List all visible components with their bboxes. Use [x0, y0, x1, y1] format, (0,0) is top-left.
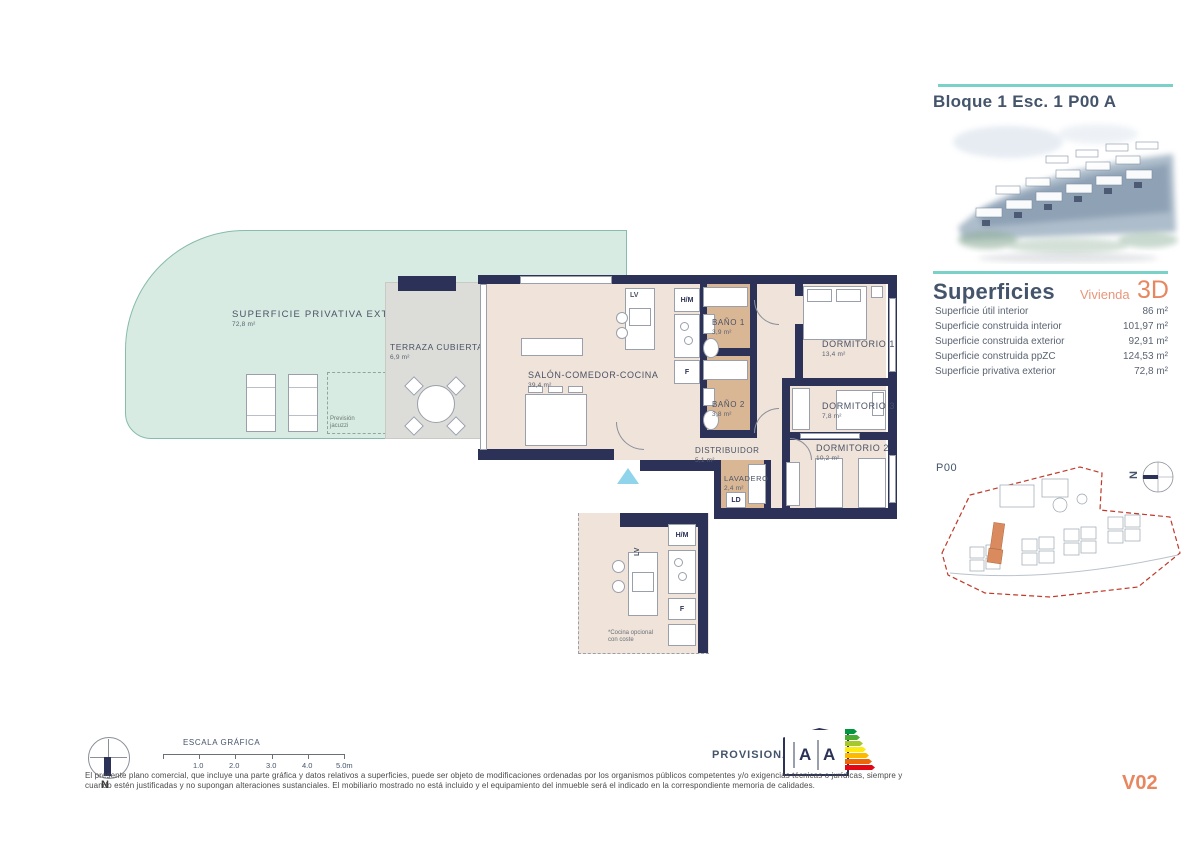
pillow [807, 289, 832, 302]
sideboard [521, 338, 583, 356]
unit-code: 3D [1137, 276, 1169, 305]
laundry-unit: LD [726, 492, 746, 508]
wall [714, 508, 897, 519]
scale-bar: 1.0 2.0 3.0 4.0 5.0m [163, 754, 345, 760]
superficies-heading: Superficies [933, 279, 1055, 305]
room-label-bano2: BAÑO 2 3,8 m² [712, 400, 745, 419]
siteplan-compass: N [1128, 462, 1173, 492]
sink-icon [680, 322, 689, 331]
wall [478, 449, 614, 460]
scale-title: ESCALA GRÁFICA [183, 738, 260, 747]
dining-table [525, 394, 587, 446]
window [889, 455, 896, 503]
energy-scale-icon [845, 729, 877, 775]
room-label-terraza: TERRAZA CUBIERTA 6,9 m² [390, 343, 483, 362]
room-label-bano1: BAÑO 1 3,9 m² [712, 318, 745, 337]
round-table [417, 385, 455, 423]
room-label-distribuidor: DISTRIBUIDOR 5,1 m² [695, 446, 760, 465]
plan-sheet: SUPERFICIE PRIVATIVA EXTERIOR 72,8 m² Pr… [0, 0, 1200, 850]
hob-icon [612, 580, 625, 593]
room-label-salon: SALÓN-COMEDOR-COCINA 39,4 m² [528, 371, 659, 390]
wall [795, 284, 803, 296]
wall [714, 460, 721, 512]
highlighted-block [987, 522, 1005, 563]
disclaimer-line-1: El presente plano comercial, que incluye… [85, 771, 1165, 780]
bathtub [703, 287, 748, 307]
window [520, 276, 612, 284]
accent-divider [933, 271, 1168, 274]
toilet [703, 338, 719, 358]
room-label-dorm3: DORMITORIO 3 7,8 m² [822, 402, 895, 421]
siteplan: N [930, 455, 1192, 615]
entrance-marker-icon [617, 468, 639, 484]
nightstand [871, 286, 883, 298]
sliding-glass-door [480, 284, 487, 450]
accent-divider [938, 84, 1173, 87]
sun-lounger [246, 374, 276, 432]
north-label: N [1128, 471, 1140, 479]
hob-icon [612, 560, 625, 573]
optional-kitchen-note: *Cocina opcional con coste [608, 630, 653, 644]
wall [398, 276, 456, 291]
fridge-unit: F [668, 598, 696, 620]
wardrobe [786, 462, 800, 506]
building-render [948, 112, 1180, 264]
counter-unit [668, 624, 696, 646]
fridge-unit: F [674, 360, 700, 384]
scale-tick-label: 5.0m [336, 761, 353, 770]
sink-icon [684, 336, 693, 345]
hob-icon [616, 312, 628, 324]
oven-micro-unit: H/M [674, 288, 700, 312]
wall [750, 284, 757, 356]
energy-house-icon: A A [783, 728, 849, 776]
jacuzzi-note: Previsión jacuzzi [330, 416, 355, 430]
pillow [836, 289, 861, 302]
bathtub [703, 360, 748, 380]
scale-tick-label: 1.0 [193, 761, 203, 770]
wardrobe [792, 388, 810, 430]
sliding-door [800, 433, 860, 439]
room-label-dorm2: DORMITORIO 2 10,2 m² [816, 444, 889, 463]
wall [795, 324, 803, 378]
wall [782, 386, 790, 432]
oven-micro-unit: H/M [668, 524, 696, 546]
hob-icon [616, 327, 628, 339]
sink-icon [674, 558, 683, 567]
dishwasher-label: LV [630, 292, 638, 299]
window [889, 298, 896, 372]
room-name: TERRAZA CUBIERTA [390, 343, 483, 352]
kitchen-sink [629, 308, 651, 326]
sheet-title: Bloque 1 Esc. 1 P00 A [933, 92, 1116, 112]
room-label-dorm1: DORMITORIO 1 13,4 m² [822, 340, 895, 359]
room-label-lavadero: LAVADERO 2,4 m² [724, 474, 769, 493]
wall [782, 378, 888, 386]
bed [815, 458, 843, 508]
dishwasher-label: LV [634, 548, 641, 556]
scale-tick-label: 2.0 [229, 761, 239, 770]
scale-tick-label: 4.0 [302, 761, 312, 770]
sun-lounger [288, 374, 318, 432]
room-area: 6,9 m² [390, 353, 483, 362]
sink-icon [678, 572, 687, 581]
wall [698, 513, 708, 653]
disclaimer-line-2: cuando estén justificadas y no supongan … [85, 781, 1165, 790]
wall [700, 430, 757, 438]
vivienda-label: Vivienda [1080, 287, 1130, 302]
bed [858, 458, 886, 508]
version-label: V02 [1122, 772, 1158, 795]
scale-tick-label: 3.0 [266, 761, 276, 770]
kitchen-sink [632, 572, 654, 592]
